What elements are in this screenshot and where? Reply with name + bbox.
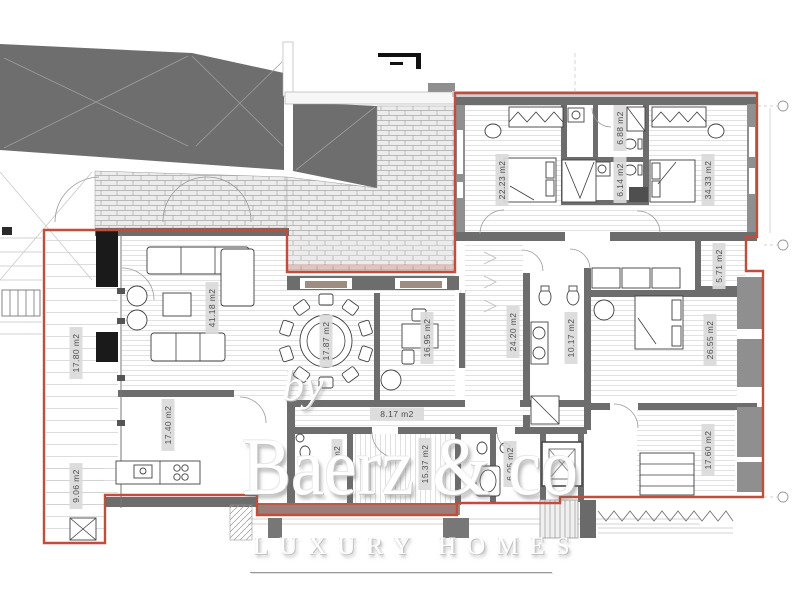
- label-wc: m2: [332, 439, 343, 465]
- svg-text:6.14 m2: 6.14 m2: [615, 163, 625, 197]
- svg-text:6.88 m2: 6.88 m2: [615, 111, 625, 145]
- label-terrace: 17.80 m2: [70, 327, 83, 379]
- sink: [533, 327, 545, 339]
- label-bedroom-2: 22.23 m2: [496, 154, 509, 206]
- armchair: [594, 300, 614, 320]
- bed: [640, 453, 694, 495]
- label-bathroom-main: 10.17 m2: [565, 312, 578, 364]
- curtain-block: [96, 231, 118, 287]
- label-dining-room: 17.87 m2: [320, 315, 333, 367]
- toilet: [477, 442, 487, 454]
- sink: [533, 347, 545, 359]
- armchair: [127, 310, 147, 330]
- svg-text:26.55 m2: 26.55 m2: [705, 321, 715, 360]
- label-bathroom-2: 6.88 m2: [614, 105, 627, 151]
- svg-text:9.06 m2: 9.06 m2: [71, 469, 81, 503]
- label-bedroom-4: 17.60 m2: [702, 424, 715, 476]
- label-bathroom-3: 6.14 m2: [614, 157, 627, 203]
- balcony-railing: [598, 511, 733, 521]
- armchair: [381, 370, 401, 390]
- sink: [296, 434, 304, 442]
- svg-text:5.71 m2: 5.71 m2: [714, 249, 724, 283]
- stair-hatch: [230, 505, 252, 540]
- svg-text:8.17 m2: 8.17 m2: [380, 409, 414, 419]
- svg-text:6.05 m2: 6.05 m2: [505, 447, 515, 481]
- label-study: 16.95 m2: [421, 312, 434, 364]
- svg-text:22.23 m2: 22.23 m2: [497, 161, 507, 200]
- svg-text:16.95 m2: 16.95 m2: [422, 319, 432, 358]
- neighbor-terrace-left: [0, 238, 42, 334]
- stove: [174, 465, 180, 471]
- staircase: [540, 500, 578, 538]
- sofa: [151, 333, 225, 361]
- svg-text:34.33 m2: 34.33 m2: [703, 161, 713, 200]
- grid-marker: [778, 101, 788, 111]
- svg-text:15.37 m2: 15.37 m2: [420, 445, 430, 484]
- svg-text:17.60 m2: 17.60 m2: [703, 431, 713, 470]
- coffee-table: [163, 293, 191, 316]
- armchair: [127, 286, 147, 306]
- svg-text:24.20 m2: 24.20 m2: [508, 313, 518, 352]
- svg-text:10.17 m2: 10.17 m2: [566, 319, 576, 358]
- label-walk-in: 5.71 m2: [713, 243, 726, 289]
- svg-text:17.40 m2: 17.40 m2: [163, 406, 173, 445]
- svg-text:17.87 m2: 17.87 m2: [321, 322, 331, 361]
- chimney-marker: [378, 53, 420, 57]
- grid-marker: [778, 240, 788, 250]
- svg-text:m2: m2: [332, 446, 342, 459]
- curtain-block: [96, 332, 118, 362]
- label-inner-hall: 15.37 m2: [419, 438, 432, 490]
- label-living-room: 41.18 m2: [206, 282, 219, 334]
- label-bedroom-3: 34.33 m2: [702, 154, 715, 206]
- label-corridor: 8.17 m2: [370, 408, 424, 421]
- label-kitchen: 17.40 m2: [162, 399, 175, 451]
- toilet: [300, 446, 310, 458]
- wardrobe: [652, 107, 706, 127]
- svg-text:41.18 m2: 41.18 m2: [207, 289, 217, 328]
- wardrobe: [509, 107, 563, 127]
- floor-plan-page: 17.80 m2 41.18 m2 17.87 m2 16.95 m2 24.2…: [0, 0, 800, 600]
- label-hallway: 24.20 m2: [507, 306, 520, 358]
- kitchen-counter: [116, 461, 200, 484]
- floor-plan-drawing: 17.80 m2 41.18 m2 17.87 m2 16.95 m2 24.2…: [0, 0, 800, 600]
- label-terrace-lower: 9.06 m2: [70, 463, 83, 509]
- label-master-bedroom: 26.55 m2: [704, 314, 717, 366]
- grid-marker: [778, 492, 788, 502]
- label-bathroom-4: 6.05 m2: [504, 441, 517, 487]
- elevator: [542, 442, 582, 486]
- svg-text:17.80 m2: 17.80 m2: [71, 334, 81, 373]
